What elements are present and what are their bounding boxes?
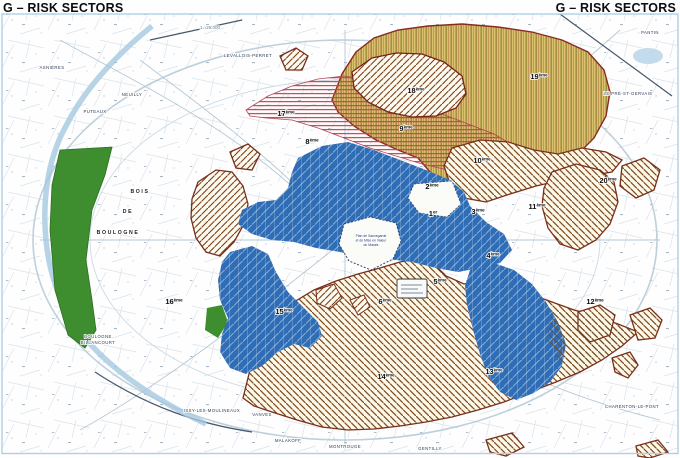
suburb-label: MONTROUGE bbox=[329, 444, 361, 449]
suburb-label: NEUILLY bbox=[122, 92, 142, 97]
page: LEVALLOIS-PERRETASNIÈRESPUTEAUXNEUILLYPA… bbox=[0, 0, 680, 458]
map-canvas: LEVALLOIS-PERRETASNIÈRESPUTEAUXNEUILLYPA… bbox=[0, 0, 680, 458]
suburb-label: LE PRÉ-ST-GERVAIS bbox=[604, 91, 653, 96]
park-name-label: BOIS bbox=[130, 189, 149, 195]
suburb-label: ISSY-LES-MOULINEAUX bbox=[184, 408, 240, 413]
suburb-label: PUTEAUX bbox=[83, 109, 106, 114]
suburb-label: BILLANCOURT bbox=[81, 340, 115, 345]
psmv-note-line: du Marais bbox=[364, 243, 379, 247]
psmv-note-line: et de Mise en Valeur bbox=[356, 239, 388, 243]
suburb-label: LEVALLOIS-PERRET bbox=[224, 53, 272, 58]
water-basin bbox=[633, 48, 663, 64]
park-name-label: DE bbox=[123, 209, 133, 215]
suburb-label: VANVES bbox=[252, 412, 272, 417]
risk-sector-map: LEVALLOIS-PERRETASNIÈRESPUTEAUXNEUILLYPA… bbox=[0, 0, 680, 458]
suburb-label: GENTILLY bbox=[418, 446, 442, 451]
suburb-label: CHARENTON-LE-PONT bbox=[605, 404, 659, 409]
scale-note: 1 : 25.000 bbox=[200, 25, 221, 30]
suburb-label: ASNIÈRES bbox=[40, 65, 65, 70]
park-name-label: BOULOGNE bbox=[97, 230, 140, 236]
page-title-left: G – RISK SECTORS bbox=[3, 1, 123, 15]
psmv-note-line: Plan de Sauvegarde bbox=[356, 234, 387, 238]
small-label-box bbox=[397, 279, 427, 298]
suburb-label: PANTIN bbox=[641, 30, 659, 35]
suburb-label: BOULOGNE bbox=[84, 334, 112, 339]
map-scale: 1 : 25.000 bbox=[200, 25, 221, 30]
page-title-right: G – RISK SECTORS bbox=[556, 1, 676, 15]
suburb-label: MALAKOFF bbox=[275, 438, 301, 443]
